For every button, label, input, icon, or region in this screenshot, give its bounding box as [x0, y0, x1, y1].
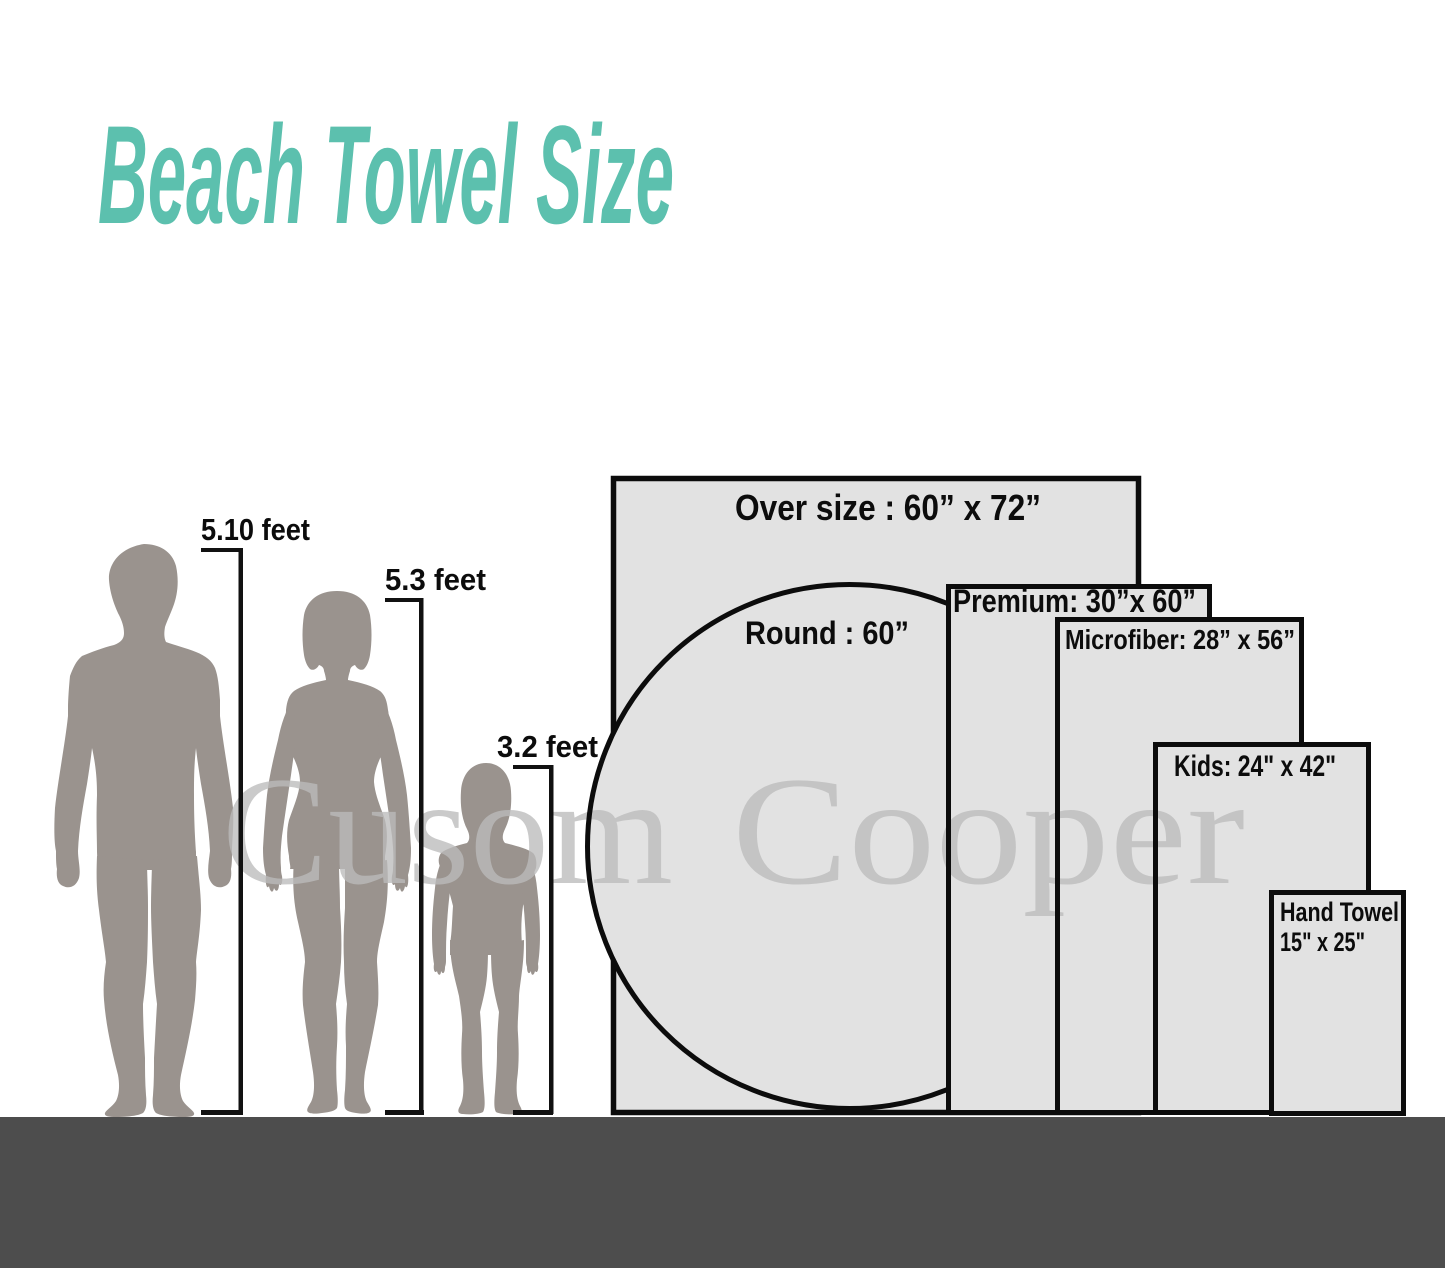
svg-text:Hand Towel: Hand Towel	[1280, 897, 1399, 927]
svg-text:Premium: 30”x 60”: Premium: 30”x 60”	[953, 583, 1196, 619]
svg-text:5.10 feet: 5.10 feet	[201, 512, 310, 547]
svg-text:Beach Towel Size: Beach Towel Size	[98, 96, 674, 253]
svg-text:Kids: 24" x 42": Kids: 24" x 42"	[1174, 750, 1336, 783]
svg-text:15" x 25": 15" x 25"	[1280, 927, 1365, 957]
svg-text:Cusom: Cusom	[222, 745, 673, 917]
svg-text:Round : 60”: Round : 60”	[745, 615, 909, 651]
svg-text:Microfiber: 28” x 56”: Microfiber: 28” x 56”	[1065, 624, 1295, 655]
svg-text:5.3 feet: 5.3 feet	[385, 562, 486, 597]
svg-text:Over size : 60” x 72”: Over size : 60” x 72”	[735, 487, 1041, 528]
svg-text:Cooper: Cooper	[732, 745, 1245, 917]
